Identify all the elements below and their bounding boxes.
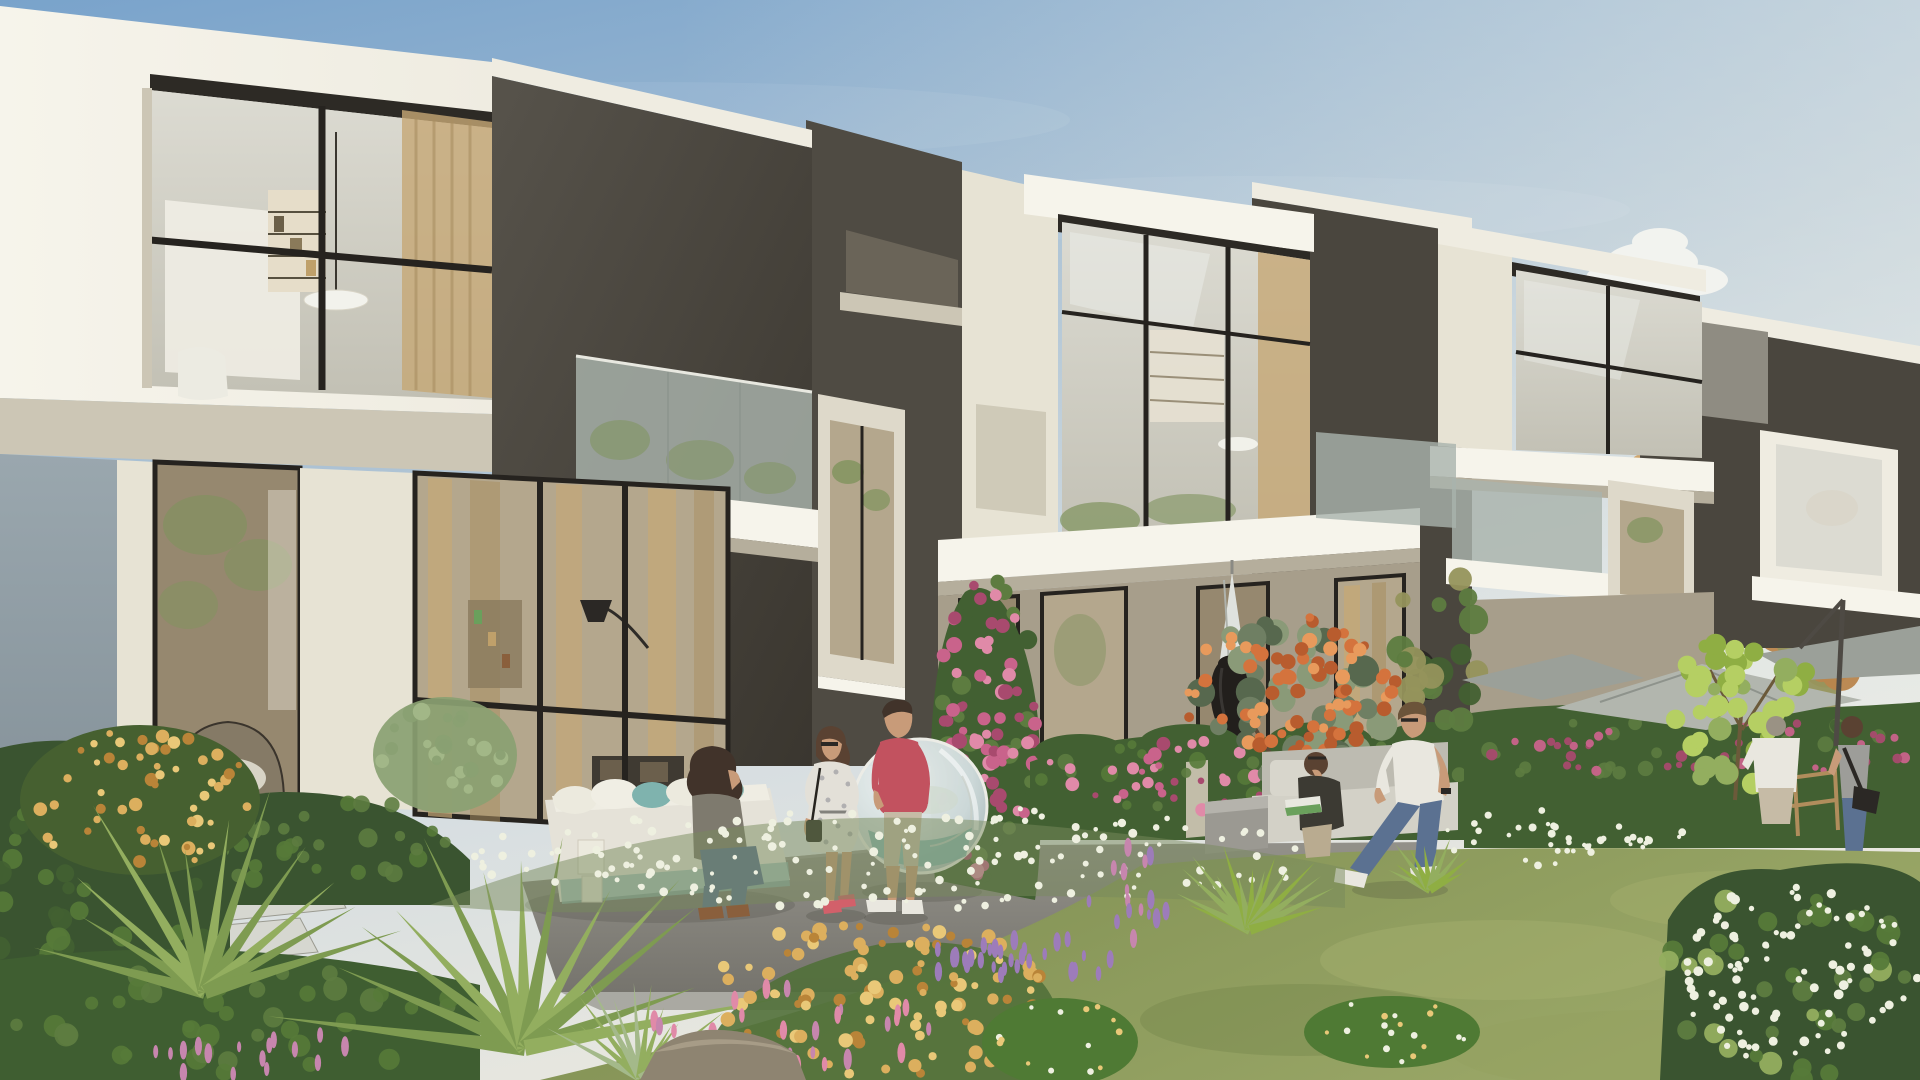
watch bbox=[1441, 788, 1451, 794]
pendant-lamp-b bbox=[1218, 437, 1258, 451]
curtain-b bbox=[1258, 252, 1310, 534]
pillow bbox=[553, 786, 597, 814]
rendered-photo bbox=[0, 0, 1920, 1080]
pillow bbox=[591, 779, 639, 809]
scene-canvas bbox=[0, 0, 1920, 1080]
glass-balcony-b bbox=[1316, 432, 1456, 528]
sneaker bbox=[866, 900, 896, 912]
pendant-lamp-a bbox=[304, 290, 368, 310]
armchair-reflection bbox=[178, 347, 228, 400]
teal-pillow bbox=[632, 782, 672, 808]
